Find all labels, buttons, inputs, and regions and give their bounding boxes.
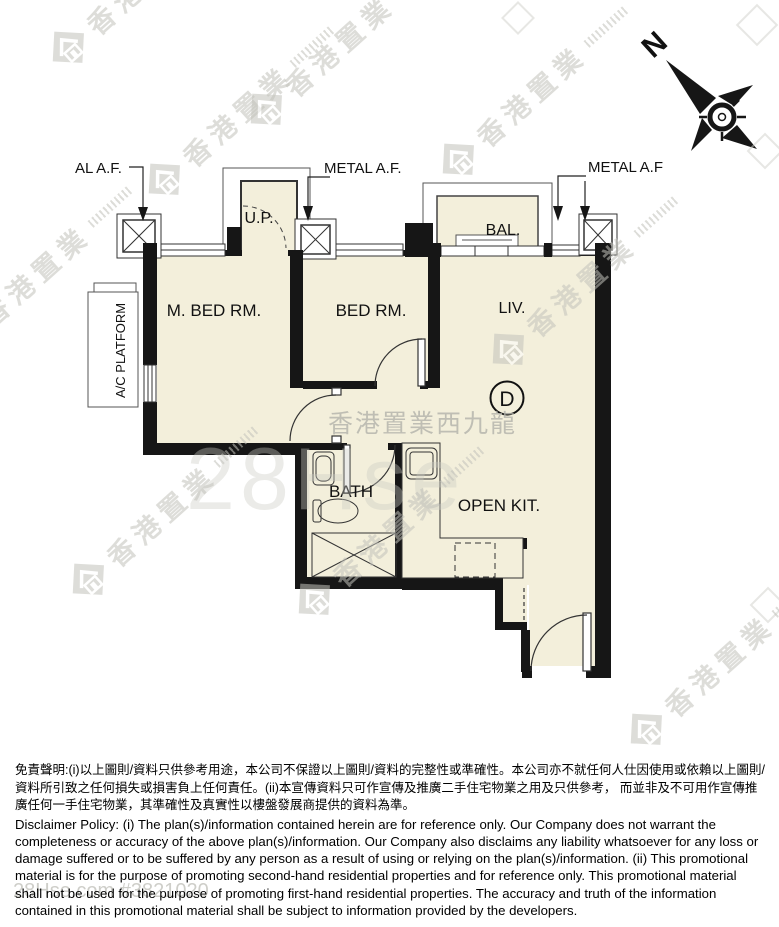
label-metal-af-2: METAL A.F bbox=[588, 159, 663, 176]
disclaimer-english: Disclaimer Policy: (i) The plan(s)/infor… bbox=[15, 816, 767, 920]
label-bath: BATH bbox=[329, 482, 373, 501]
label-al-af: AL A.F. bbox=[75, 160, 122, 177]
compass-north-label: N bbox=[636, 25, 674, 64]
label-bed: BED RM. bbox=[336, 301, 407, 320]
floor-plan-page: D N AL A.F. METAL A.F. METAL A.F U.P. BA… bbox=[0, 0, 779, 927]
label-metal-af-1: METAL A.F. bbox=[324, 160, 402, 177]
disclaimer-block: 免責聲明:(i)以上圖則/資料只供參考用途，本公司不保證以上圖則/資料的完整性或… bbox=[15, 762, 767, 919]
label-bal: BAL. bbox=[486, 222, 521, 239]
label-liv: LIV. bbox=[499, 300, 526, 317]
compass: N bbox=[636, 25, 757, 151]
arrow-down bbox=[553, 206, 563, 221]
window bbox=[144, 365, 156, 402]
balcony bbox=[423, 183, 552, 253]
floor-plan-drawing: D N AL A.F. METAL A.F. METAL A.F U.P. BA… bbox=[0, 0, 779, 760]
label-m-bed: M. BED RM. bbox=[167, 301, 261, 320]
balcony-sliding-door bbox=[441, 246, 544, 256]
compass-needle-nw bbox=[666, 60, 716, 114]
unit-letter: D bbox=[499, 388, 514, 411]
label-open-kit: OPEN KIT. bbox=[458, 496, 540, 515]
label-ac-platform: A/C PLATFORM bbox=[113, 303, 128, 398]
disclaimer-chinese: 免責聲明:(i)以上圖則/資料只供參考用途，本公司不保證以上圖則/資料的完整性或… bbox=[15, 762, 767, 815]
label-up: U.P. bbox=[244, 210, 273, 227]
